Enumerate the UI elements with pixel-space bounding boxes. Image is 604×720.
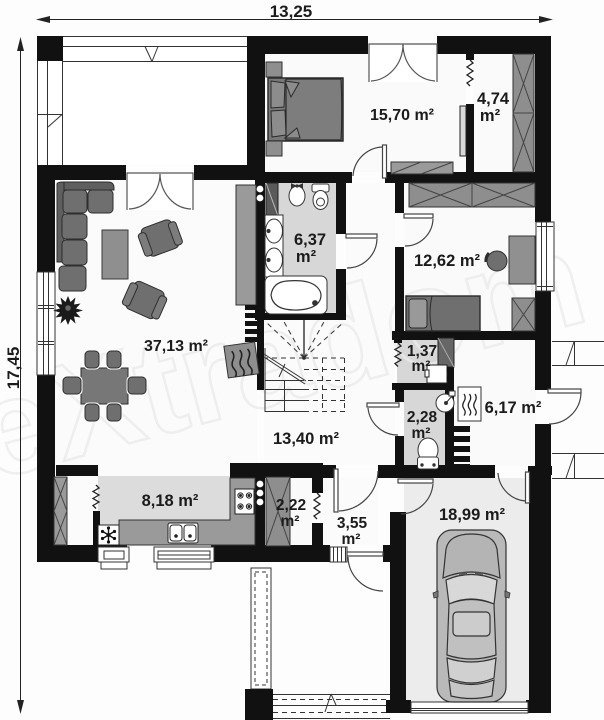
svg-text:37,13 m²: 37,13 m² — [144, 338, 208, 355]
svg-text:m²: m² — [342, 531, 361, 548]
svg-text:m²: m² — [296, 248, 317, 266]
svg-text:2,28: 2,28 — [407, 409, 438, 426]
svg-text:3,55: 3,55 — [337, 515, 368, 532]
svg-text:m²: m² — [281, 513, 300, 530]
svg-text:17,45: 17,45 — [4, 347, 23, 390]
svg-text:6,17 m²: 6,17 m² — [485, 399, 542, 417]
svg-text:8,18 m²: 8,18 m² — [142, 492, 199, 510]
svg-text:15,70 m²: 15,70 m² — [370, 107, 434, 124]
svg-text:2,22: 2,22 — [276, 497, 306, 514]
svg-text:m²: m² — [480, 107, 501, 125]
svg-text:12,62 m²: 12,62 m² — [414, 252, 481, 270]
svg-text:m²: m² — [412, 358, 431, 375]
svg-text:4,74: 4,74 — [477, 90, 510, 108]
svg-text:13,40 m²: 13,40 m² — [273, 430, 340, 448]
svg-text:6,37: 6,37 — [294, 231, 326, 249]
svg-text:18,99 m²: 18,99 m² — [439, 506, 506, 524]
svg-text:13,25: 13,25 — [270, 2, 313, 21]
svg-text:m²: m² — [412, 425, 431, 442]
